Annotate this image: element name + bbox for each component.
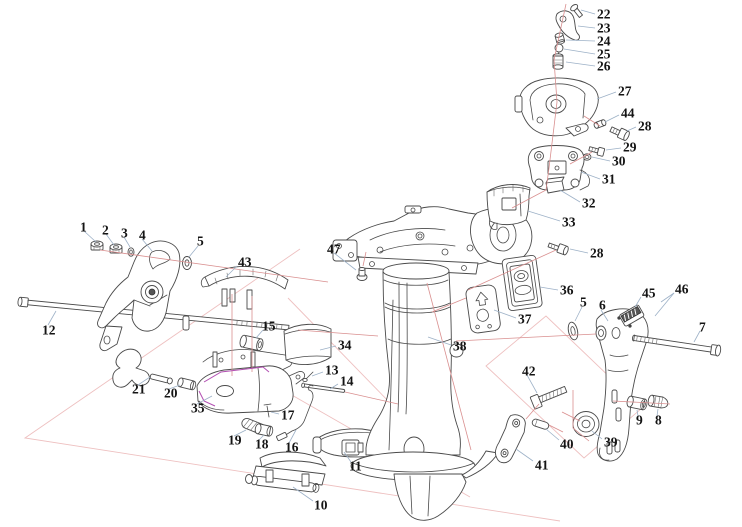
part-label-12: 12 — [42, 323, 56, 338]
part-label-30: 30 — [612, 154, 626, 169]
part-label-46: 46 — [675, 282, 689, 297]
part-label-18: 18 — [255, 437, 269, 452]
part-label-28: 28 — [590, 246, 604, 261]
part-label-5: 5 — [580, 295, 587, 310]
exploded-parts-diagram: 2223242526274428293031323312345431247283… — [0, 0, 742, 527]
part-28-bolt-lower — [547, 240, 569, 255]
part-15-bushing — [239, 335, 264, 352]
part-label-38: 38 — [453, 339, 467, 354]
part-label-19: 19 — [228, 433, 242, 448]
part-label-4: 4 — [139, 228, 146, 243]
leader-line-22 — [581, 10, 595, 14]
part-label-39: 39 — [604, 435, 618, 450]
leader-line-30 — [592, 157, 610, 161]
part-label-6: 6 — [599, 298, 606, 313]
part-label-35: 35 — [191, 401, 205, 416]
part-label-47: 47 — [327, 242, 341, 257]
part-label-27: 27 — [618, 84, 632, 99]
part-label-15: 15 — [262, 319, 276, 334]
leader-line-32 — [560, 190, 580, 202]
part-10-transom-pad — [246, 452, 327, 493]
leader-line-40 — [546, 429, 559, 440]
leader-line-31 — [581, 172, 600, 179]
part-label-36: 36 — [560, 283, 574, 298]
leader-line-26 — [566, 62, 595, 66]
part-47-bolt — [357, 268, 367, 281]
leader-line-28 — [627, 127, 636, 131]
diagram-page: 2223242526274428293031323312345431247283… — [0, 0, 742, 527]
part-label-41: 41 — [535, 458, 549, 473]
part-8-cap-nut — [647, 395, 668, 409]
leader-line-36 — [540, 287, 558, 290]
part-20-bushing — [177, 377, 197, 390]
leader-line-24 — [566, 40, 595, 41]
part-label-16: 16 — [285, 440, 299, 455]
part-label-13: 13 — [325, 363, 339, 378]
part-label-17: 17 — [281, 408, 295, 423]
part-41-link-arm — [493, 412, 528, 466]
part-label-9: 9 — [636, 413, 643, 428]
part-label-29: 29 — [623, 140, 637, 155]
part-label-20: 20 — [164, 386, 178, 401]
part-label-22: 22 — [597, 7, 611, 22]
part-44-bushing — [593, 119, 606, 129]
part-label-43: 43 — [238, 255, 252, 270]
part-label-33: 33 — [562, 215, 576, 230]
leader-line-44 — [605, 115, 619, 122]
part-label-32: 32 — [582, 196, 596, 211]
part-43-steering-bracket — [201, 266, 288, 309]
part-label-31: 31 — [602, 172, 616, 187]
part-label-45: 45 — [642, 286, 656, 301]
part-label-10: 10 — [314, 498, 328, 513]
leader-line-46 — [655, 293, 674, 316]
part-label-5: 5 — [197, 234, 204, 249]
part-label-2: 2 — [102, 223, 109, 238]
leader-line-23 — [578, 26, 595, 28]
part-36-upper-mount-rubber — [502, 255, 543, 311]
leader-line-28 — [570, 249, 588, 253]
part-label-42: 42 — [522, 364, 536, 379]
part-label-8: 8 — [655, 413, 662, 428]
part-label-34: 34 — [338, 338, 352, 353]
part-14-rod — [301, 383, 345, 393]
part-label-3: 3 — [121, 226, 128, 241]
leader-line-27 — [597, 92, 616, 99]
leader-line-25 — [564, 49, 595, 54]
leader-line-33 — [528, 211, 560, 221]
part-label-26: 26 — [597, 59, 611, 74]
leader-line-13 — [312, 372, 323, 376]
part-39-grommet — [573, 412, 599, 437]
leader-line-41 — [516, 449, 533, 461]
leader-line-29 — [606, 148, 621, 150]
part-label-44: 44 — [621, 106, 635, 121]
part-18-bushing — [254, 423, 273, 436]
part-label-11: 11 — [349, 459, 362, 474]
part-label-21: 21 — [132, 382, 146, 397]
part-label-1: 1 — [80, 220, 87, 235]
part-label-37: 37 — [518, 312, 532, 327]
part-1-nut — [91, 241, 103, 250]
part-label-7: 7 — [699, 320, 706, 335]
part-label-40: 40 — [560, 437, 574, 452]
part-40-pin — [531, 418, 549, 430]
part-label-14: 14 — [340, 374, 354, 389]
part-label-28: 28 — [638, 119, 652, 134]
part-37-mount-plate — [465, 284, 501, 334]
part-42-clamp-screw — [530, 384, 568, 410]
leader-line-17 — [271, 412, 279, 414]
part-29-bolt — [588, 145, 605, 157]
